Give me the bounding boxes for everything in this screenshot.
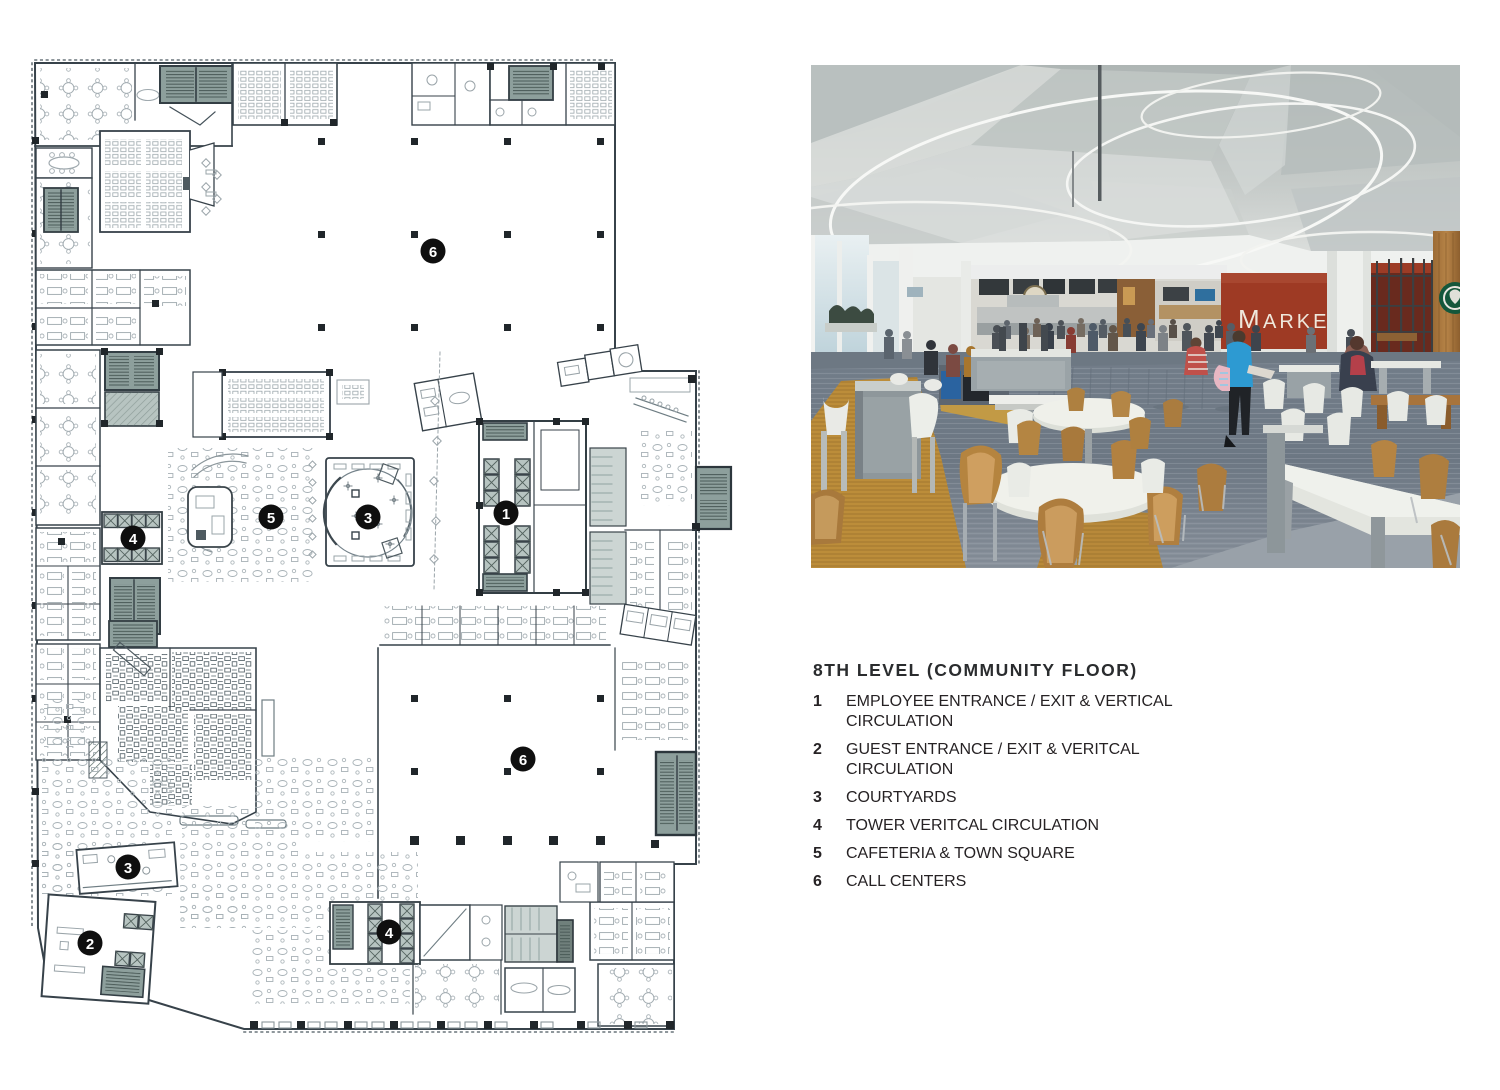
svg-text:4: 4 — [129, 531, 138, 548]
svg-text:5: 5 — [267, 510, 275, 527]
svg-text:3: 3 — [124, 860, 132, 877]
svg-text:ARKE: ARKE — [1263, 311, 1329, 333]
svg-text:4: 4 — [385, 925, 394, 942]
svg-text:6: 6 — [429, 244, 437, 261]
svg-text:3: 3 — [364, 510, 372, 527]
svg-text:1: 1 — [502, 506, 510, 523]
svg-text:6: 6 — [519, 752, 527, 769]
svg-text:2: 2 — [86, 936, 94, 953]
